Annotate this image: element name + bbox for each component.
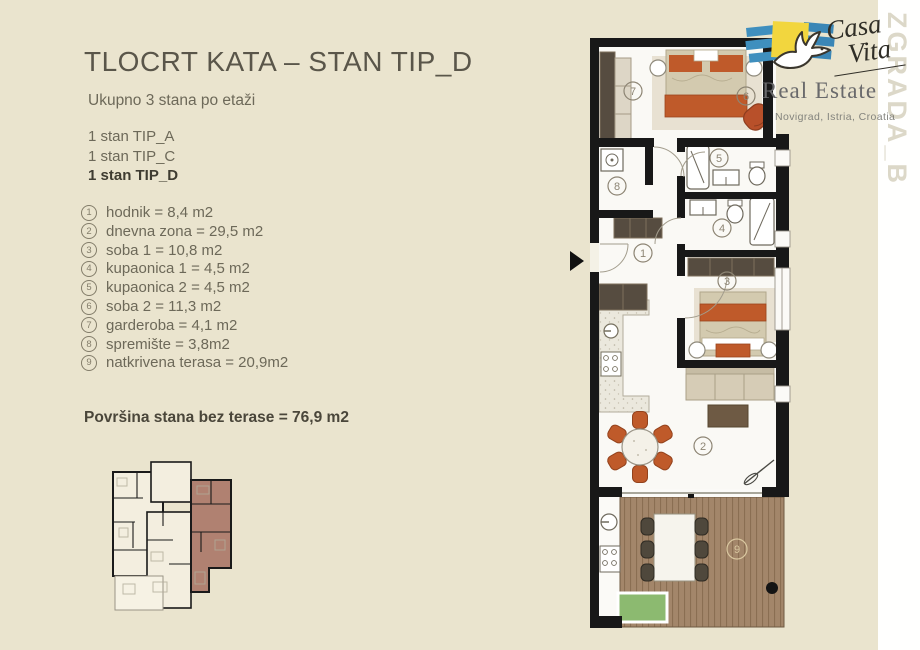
brand-location: Novigrad, Istria, Croatia	[775, 111, 895, 123]
legend-row: 5kupaonica 2 = 4,5 m2	[81, 280, 288, 295]
room-area-label: kupaonica 2 = 4,5 m2	[106, 279, 250, 296]
brand-name-line2: Vita	[846, 33, 893, 70]
room-area-label: soba 1 = 10,8 m2	[106, 242, 222, 259]
plan-label-7: 7	[630, 86, 636, 98]
dining-table	[622, 429, 658, 465]
room-area-label: soba 2 = 11,3 m2	[106, 298, 221, 315]
legend-row: 6soba 2 = 11,3 m2	[81, 299, 288, 314]
plan-label-5: 5	[716, 153, 722, 165]
storage-room	[601, 149, 623, 171]
nightstand-lamp	[689, 342, 705, 358]
plan-label-8: 8	[614, 181, 620, 193]
terrace-column	[766, 582, 778, 594]
room-number-badge: 6	[81, 299, 97, 315]
room-area-label: hodnik = 8,4 m2	[106, 204, 213, 221]
legend-row: 7garderoba = 4,1 m2	[81, 318, 288, 333]
legend-row: 9natkrivena terasa = 20,9m2	[81, 355, 288, 370]
room-legend: 1hodnik = 8,4 m2 2dnevna zona = 29,5 m2 …	[81, 205, 288, 370]
planter-box	[618, 593, 667, 622]
room-number-badge: 5	[81, 280, 97, 296]
stove	[601, 352, 621, 376]
subtitle: Ukupno 3 stana po etaži	[88, 92, 255, 110]
unit-item: 1 stan TIP_A	[88, 127, 178, 147]
terrace-glass-door	[622, 489, 762, 498]
room-area-label: natkrivena terasa = 20,9m2	[106, 354, 288, 371]
unit-list: 1 stan TIP_A 1 stan TIP_C 1 stan TIP_D	[88, 127, 178, 186]
toilet	[727, 205, 743, 223]
plan-label-2: 2	[700, 441, 706, 453]
plan-label-4: 4	[719, 223, 725, 235]
room-area-label: dnevna zona = 29,5 m2	[106, 223, 263, 240]
legend-row: 8spremište = 3,8m2	[81, 336, 288, 351]
nightstand-lamp	[650, 60, 666, 76]
room-number-badge: 1	[81, 205, 97, 221]
room-number-badge: 3	[81, 242, 97, 258]
page-title: TLOCRT KATA – STAN TIP_D	[84, 46, 473, 78]
room-number-badge: 4	[81, 261, 97, 277]
room-area-label: garderoba = 4,1 m2	[106, 317, 237, 334]
nightstand-lamp	[761, 342, 777, 358]
legend-row: 2dnevna zona = 29,5 m2	[81, 224, 288, 239]
plan-label-9: 9	[734, 544, 740, 556]
outdoor-table	[654, 514, 695, 581]
room-number-badge: 7	[81, 317, 97, 333]
plan-label-3: 3	[724, 276, 730, 288]
unit-item-current: 1 stan TIP_D	[88, 166, 178, 186]
coffee-table	[708, 405, 748, 427]
unit-item: 1 stan TIP_C	[88, 147, 178, 167]
room-area-label: kupaonica 1 = 4,5 m2	[106, 260, 250, 277]
total-area-label: Površina stana bez terase = 76,9 m2	[84, 409, 349, 427]
plan-label-1: 1	[640, 248, 646, 260]
mini-units	[113, 462, 231, 610]
brand-division: Real Estate	[762, 78, 920, 104]
room-area-label: spremište = 3,8m2	[106, 336, 230, 353]
terrace	[599, 497, 784, 627]
mini-floorplan	[103, 456, 243, 618]
legend-row: 1hodnik = 8,4 m2	[81, 205, 288, 220]
entrance-arrow-icon	[570, 251, 584, 271]
sofa	[686, 374, 774, 400]
bedroom-1	[689, 288, 777, 358]
room-number-badge: 9	[81, 355, 97, 371]
legend-row: 4kupaonica 1 = 4,5 m2	[81, 261, 288, 276]
toilet	[749, 167, 765, 185]
room-number-badge: 8	[81, 336, 97, 352]
logo: Casa Vita Real Estate Novigrad, Istria, …	[742, 14, 920, 129]
legend-row: 3soba 1 = 10,8 m2	[81, 243, 288, 258]
room-number-badge: 2	[81, 223, 97, 239]
